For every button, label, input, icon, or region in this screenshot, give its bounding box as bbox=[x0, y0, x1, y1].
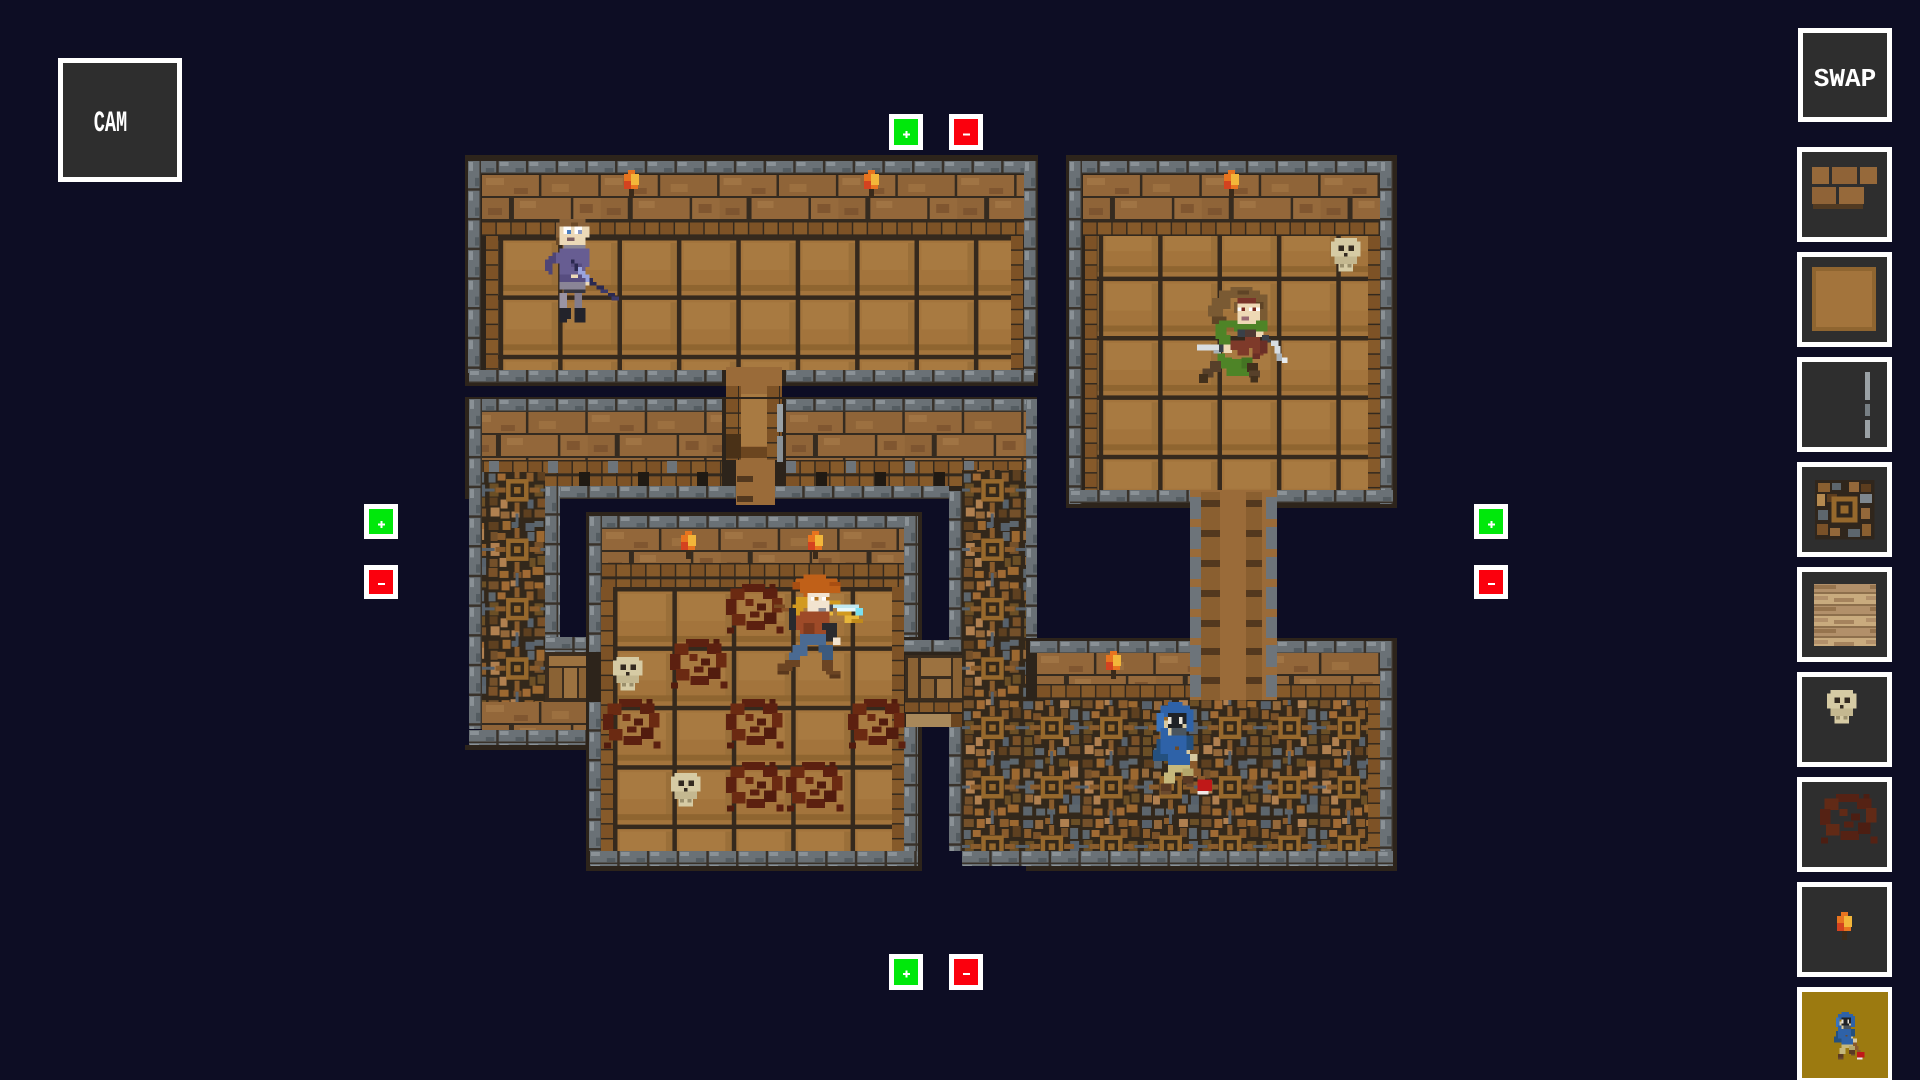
svg-text:CAM: CAM bbox=[94, 107, 127, 141]
svg-text:SWAP: SWAP bbox=[1814, 64, 1876, 94]
